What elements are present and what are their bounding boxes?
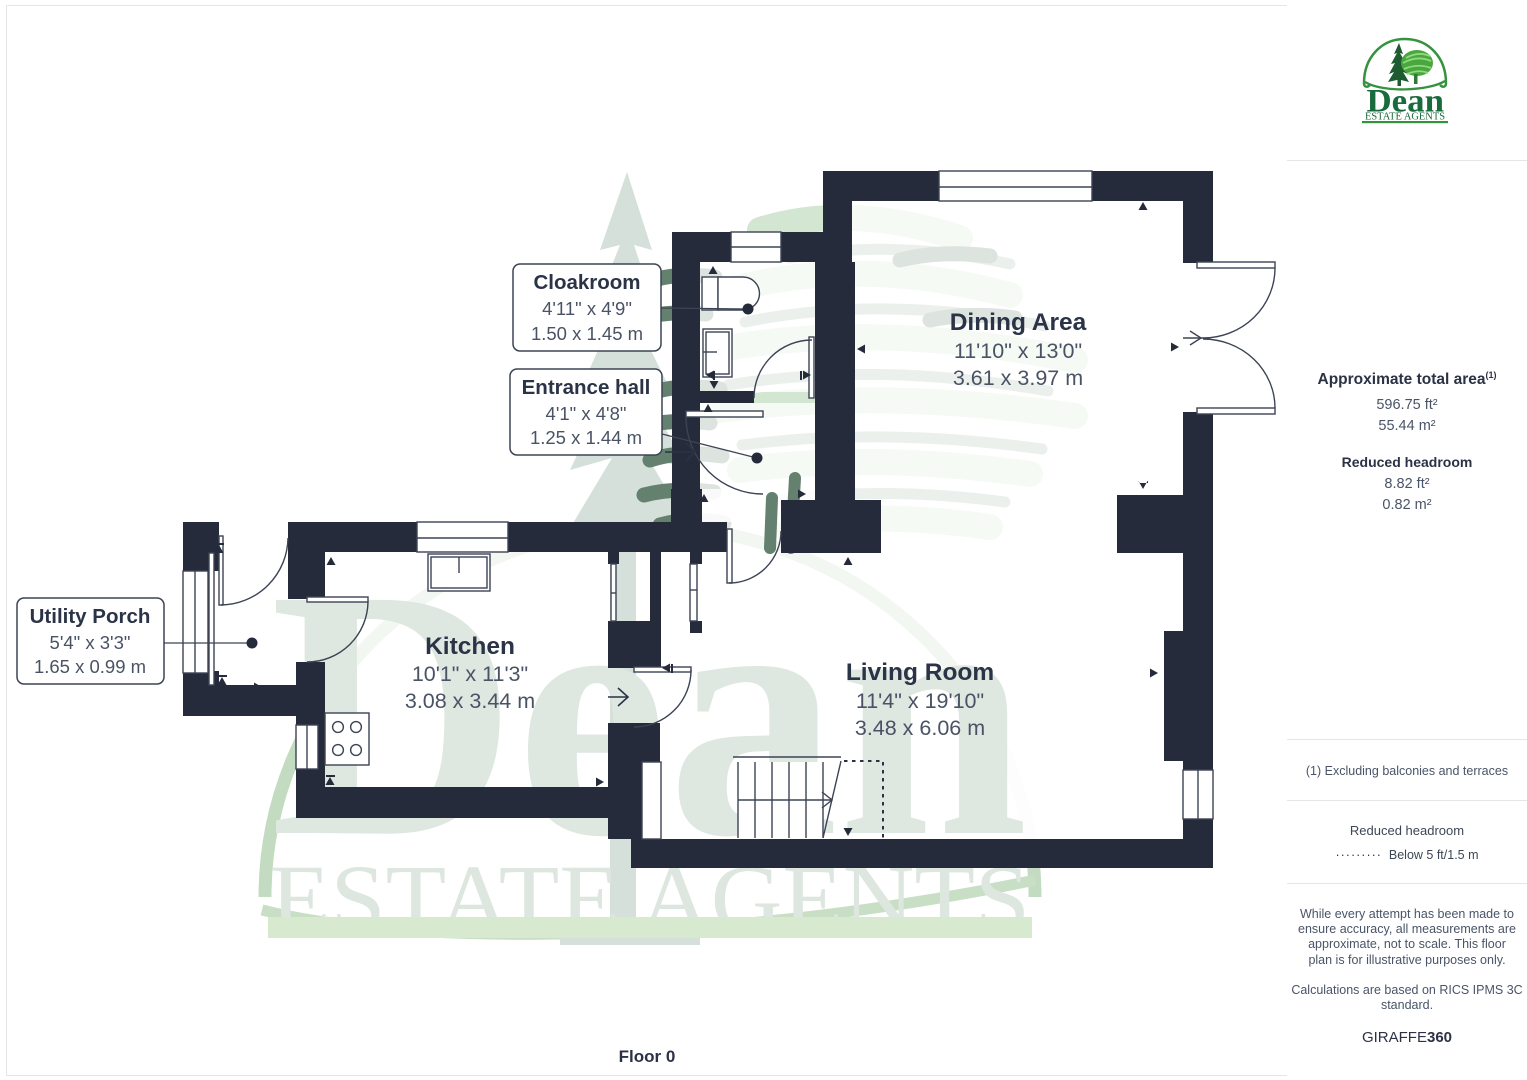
svg-text:3.08 x 3.44 m: 3.08 x 3.44 m — [405, 689, 535, 713]
svg-text:5'4" x 3'3": 5'4" x 3'3" — [50, 632, 131, 653]
svg-text:Kitchen: Kitchen — [425, 633, 515, 660]
svg-text:Living Room: Living Room — [846, 659, 994, 686]
svg-text:10'1" x 11'3": 10'1" x 11'3" — [412, 662, 528, 686]
svg-text:Cloakroom: Cloakroom — [533, 271, 640, 294]
svg-text:Entrance hall: Entrance hall — [522, 376, 651, 399]
svg-text:ESTATE AGENTS: ESTATE AGENTS — [1365, 112, 1445, 123]
svg-text:1.65 x 0.99 m: 1.65 x 0.99 m — [34, 656, 146, 677]
svg-text:4'1" x 4'8": 4'1" x 4'8" — [546, 403, 627, 424]
svg-text:11'10" x 13'0": 11'10" x 13'0" — [954, 339, 1082, 363]
svg-text:11'4" x 19'10": 11'4" x 19'10" — [856, 689, 984, 713]
svg-text:3.48 x 6.06 m: 3.48 x 6.06 m — [855, 716, 985, 740]
svg-text:4'11" x 4'9": 4'11" x 4'9" — [542, 298, 632, 319]
svg-text:1.25 x 1.44 m: 1.25 x 1.44 m — [530, 427, 642, 448]
svg-text:3.61 x 3.97 m: 3.61 x 3.97 m — [953, 366, 1083, 390]
svg-text:1.50 x 1.45 m: 1.50 x 1.45 m — [531, 323, 643, 344]
svg-text:Utility Porch: Utility Porch — [30, 605, 151, 628]
svg-text:Dining Area: Dining Area — [950, 309, 1087, 336]
svg-text:Floor 0: Floor 0 — [619, 1047, 676, 1066]
